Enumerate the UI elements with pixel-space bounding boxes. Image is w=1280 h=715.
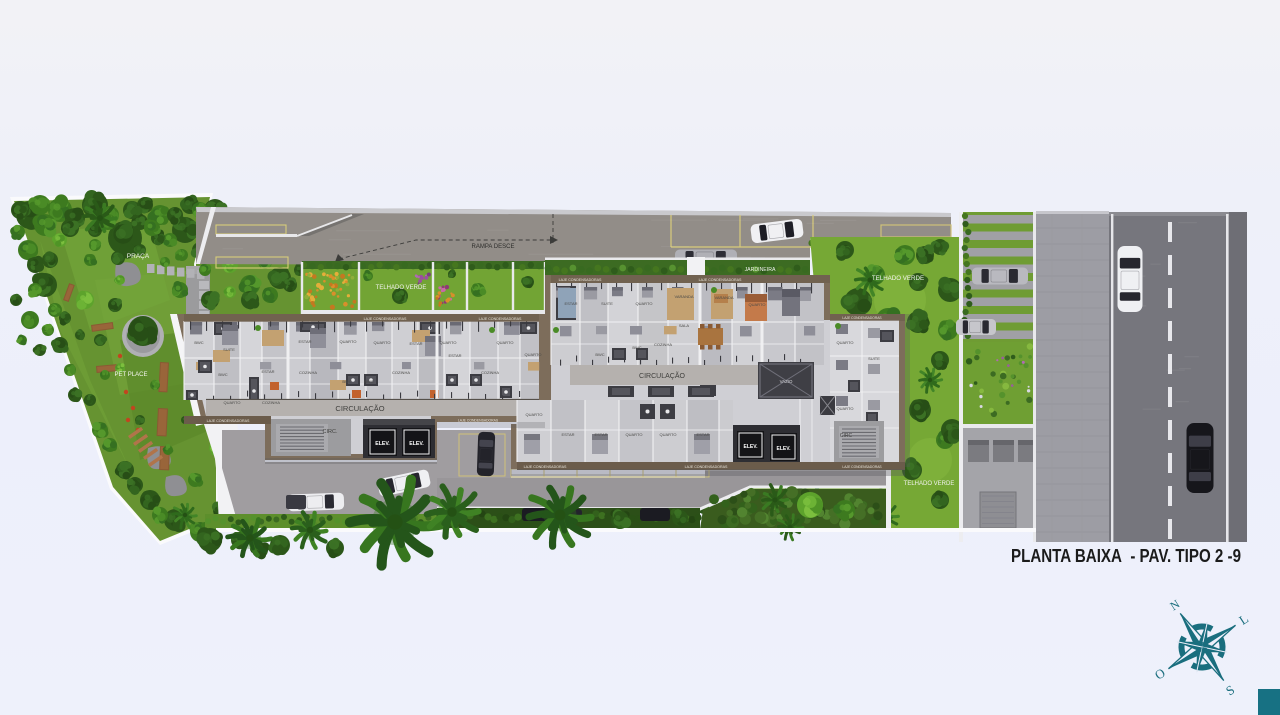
svg-text:ESTAR: ESTAR	[564, 301, 577, 306]
svg-text:QUARTO: QUARTO	[837, 406, 854, 411]
svg-text:QUARTO: QUARTO	[837, 340, 854, 345]
svg-text:ESTAR: ESTAR	[409, 341, 422, 346]
svg-text:PRAÇA: PRAÇA	[127, 253, 150, 260]
svg-text:LAJE CONDENSADORAS: LAJE CONDENSADORAS	[479, 317, 522, 321]
svg-text:PET PLACE: PET PLACE	[115, 372, 148, 378]
svg-text:TELHADO VERDE: TELHADO VERDE	[872, 275, 924, 282]
svg-text:PLANTA BAIXA - PAV. TIPO 2 -9: PLANTA BAIXA - PAV. TIPO 2 -9	[1011, 545, 1241, 566]
svg-text:LAJE CONDENSADORAS: LAJE CONDENSADORAS	[842, 316, 882, 320]
svg-text:CIRCULAÇÃO: CIRCULAÇÃO	[335, 404, 384, 413]
svg-text:ESTAR: ESTAR	[561, 432, 574, 437]
svg-text:ESTAR: ESTAR	[298, 339, 311, 344]
svg-text:ELEV.: ELEV.	[409, 441, 424, 447]
svg-text:SUITE: SUITE	[868, 356, 880, 361]
svg-text:LAJE CONDENSADORAS: LAJE CONDENSADORAS	[524, 465, 567, 469]
svg-text:COZINHA: COZINHA	[654, 342, 672, 347]
svg-text:COZINHA: COZINHA	[392, 370, 410, 375]
svg-text:QUARTO: QUARTO	[440, 340, 457, 345]
svg-text:QUARTO: QUARTO	[525, 352, 542, 357]
svg-text:ELEV.: ELEV.	[375, 441, 390, 447]
svg-text:LAJE CONDENSADORAS: LAJE CONDENSADORAS	[364, 317, 407, 321]
svg-text:ELEV.: ELEV.	[777, 446, 792, 452]
svg-text:ESTAR: ESTAR	[594, 432, 607, 437]
svg-text:QUARTO: QUARTO	[660, 432, 677, 437]
svg-text:LAJE CONDENSADORAS: LAJE CONDENSADORAS	[699, 278, 742, 282]
svg-text:SUITE: SUITE	[601, 301, 613, 306]
svg-text:RAMPA DESCE: RAMPA DESCE	[472, 244, 515, 250]
svg-text:QUARTO: QUARTO	[374, 340, 391, 345]
svg-text:LAJE CONDENSADORAS: LAJE CONDENSADORAS	[458, 419, 499, 423]
svg-text:QUARTO: QUARTO	[340, 339, 357, 344]
svg-text:CIRCULAÇÃO: CIRCULAÇÃO	[639, 371, 685, 380]
svg-text:SALA: SALA	[679, 323, 690, 328]
svg-text:VAZIO: VAZIO	[780, 379, 793, 384]
svg-text:QUARTO: QUARTO	[526, 412, 543, 417]
svg-text:CIRC: CIRC	[840, 433, 853, 439]
svg-text:VARANDA: VARANDA	[714, 295, 733, 300]
svg-text:BWC: BWC	[194, 340, 203, 345]
svg-text:BWC: BWC	[218, 372, 227, 377]
svg-text:QUARTO: QUARTO	[749, 302, 766, 307]
svg-text:JARDINEIRA: JARDINEIRA	[745, 267, 776, 273]
svg-text:LAJE CONDENSADORAS: LAJE CONDENSADORAS	[842, 465, 882, 469]
svg-text:QUARTO: QUARTO	[224, 400, 241, 405]
svg-text:ESTAR: ESTAR	[261, 369, 274, 374]
svg-text:LAJE CONDENSADORAS: LAJE CONDENSADORAS	[559, 278, 602, 282]
svg-text:QUARTO: QUARTO	[626, 432, 643, 437]
svg-text:TELHADO VERDE: TELHADO VERDE	[904, 481, 955, 487]
svg-text:QUARTO: QUARTO	[636, 301, 653, 306]
svg-text:COZINHA: COZINHA	[262, 400, 280, 405]
svg-text:VARANDA: VARANDA	[674, 294, 693, 299]
svg-text:BWC: BWC	[364, 379, 373, 384]
svg-text:ELEV.: ELEV.	[744, 444, 759, 450]
svg-text:ESTAR: ESTAR	[448, 353, 461, 358]
svg-text:BWC: BWC	[632, 345, 641, 350]
svg-text:LAJE CONDENSADORAS: LAJE CONDENSADORAS	[207, 419, 250, 423]
svg-text:TELHADO VERDE: TELHADO VERDE	[376, 285, 427, 291]
svg-text:BWC: BWC	[595, 352, 604, 357]
svg-text:SUITE: SUITE	[223, 347, 235, 352]
svg-text:LAJE CONDENSADORAS: LAJE CONDENSADORAS	[685, 465, 728, 469]
svg-text:COZINHA: COZINHA	[481, 370, 499, 375]
svg-text:ESTAR: ESTAR	[696, 432, 709, 437]
svg-text:BWC: BWC	[342, 379, 351, 384]
svg-text:QUARTO: QUARTO	[497, 340, 514, 345]
svg-text:COZINHA: COZINHA	[299, 370, 317, 375]
svg-text:CIRC.: CIRC.	[323, 429, 338, 435]
